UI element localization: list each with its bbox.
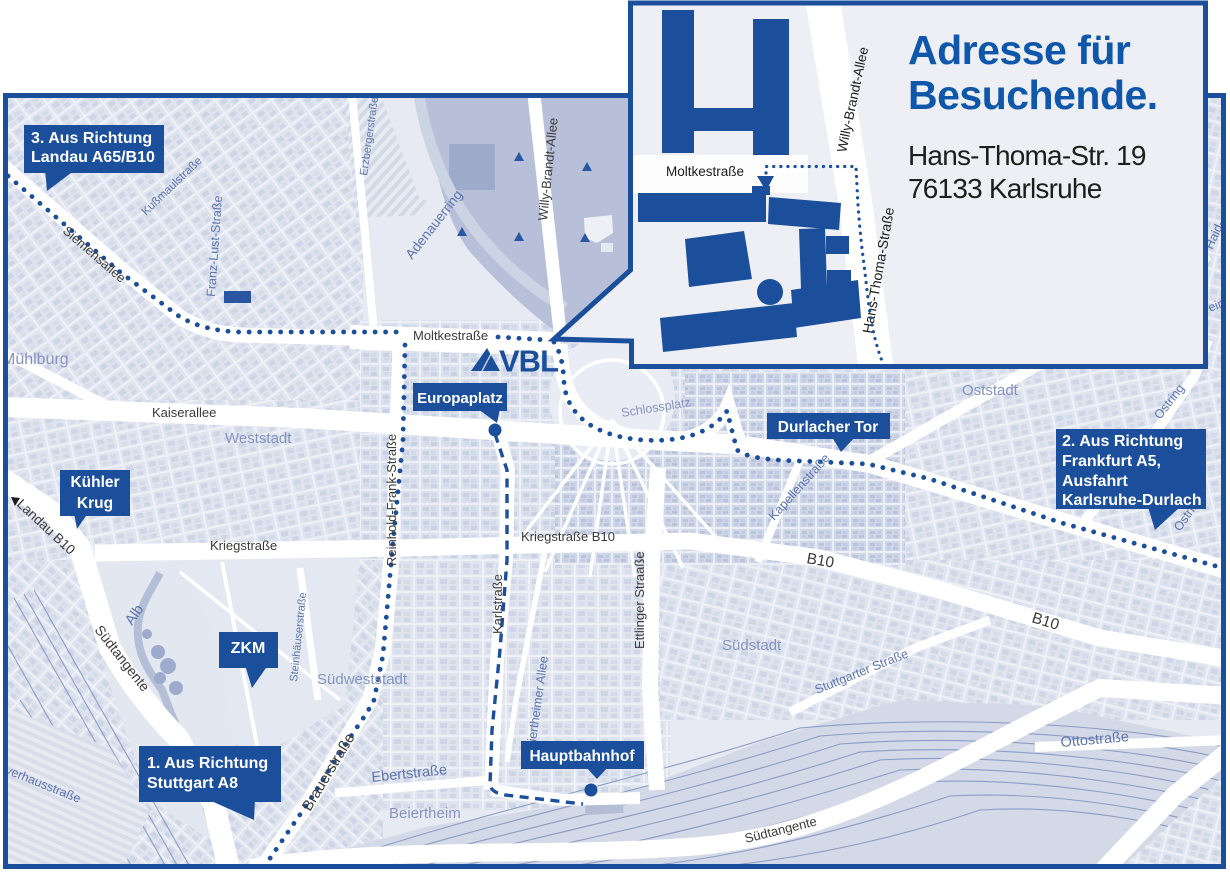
svg-text:Oststadt: Oststadt [962,382,1019,399]
svg-text:Krug: Krug [77,495,113,512]
svg-text:VBL: VBL [499,344,558,379]
svg-text:Weststadt: Weststadt [225,430,292,447]
svg-text:3. Aus Richtung: 3. Aus Richtung [31,130,152,147]
svg-text:Durlacher Tor: Durlacher Tor [778,419,879,436]
svg-text:Karlstraße: Karlstraße [490,574,505,634]
svg-text:Moltkestraße: Moltkestraße [413,328,488,343]
svg-text:Hans-Thoma-Str. 19: Hans-Thoma-Str. 19 [908,140,1146,171]
svg-text:Mühlburg: Mühlburg [2,351,69,368]
svg-text:Südweststadt: Südweststadt [317,671,408,688]
svg-text:Stuttgart A8: Stuttgart A8 [147,775,238,792]
svg-text:Kaiserallee: Kaiserallee [152,405,216,420]
svg-text:Kühler: Kühler [70,474,119,491]
svg-text:Adresse für: Adresse für [908,27,1131,73]
svg-text:Moltkestraße: Moltkestraße [666,164,744,179]
svg-text:Frankfurt A5,: Frankfurt A5, [1062,453,1161,470]
svg-text:Hauptbahnhof: Hauptbahnhof [529,748,635,765]
svg-text:1. Aus Richtung: 1. Aus Richtung [147,755,268,772]
svg-text:Südstadt: Südstadt [722,637,782,654]
svg-text:Ettlinger Straaße: Ettlinger Straaße [632,551,647,649]
svg-text:Kriegstraße B10: Kriegstraße B10 [521,529,615,544]
svg-text:Kriegstraße: Kriegstraße [210,538,277,553]
svg-text:2. Aus Richtung: 2. Aus Richtung [1062,433,1183,450]
svg-text:Reinhold-Frank-Straße: Reinhold-Frank-Straße [384,434,399,566]
svg-text:Beiertheim: Beiertheim [389,805,461,822]
svg-text:76133 Karlsruhe: 76133 Karlsruhe [908,173,1102,204]
svg-text:Ausfahrt: Ausfahrt [1062,473,1128,490]
svg-text:Europaplatz: Europaplatz [417,390,503,407]
svg-text:ZKM: ZKM [231,640,266,657]
svg-text:Besuchende.: Besuchende. [908,72,1158,118]
svg-text:Karlsruhe-Durlach: Karlsruhe-Durlach [1062,492,1202,509]
svg-text:Landau A65/B10: Landau A65/B10 [31,149,155,166]
